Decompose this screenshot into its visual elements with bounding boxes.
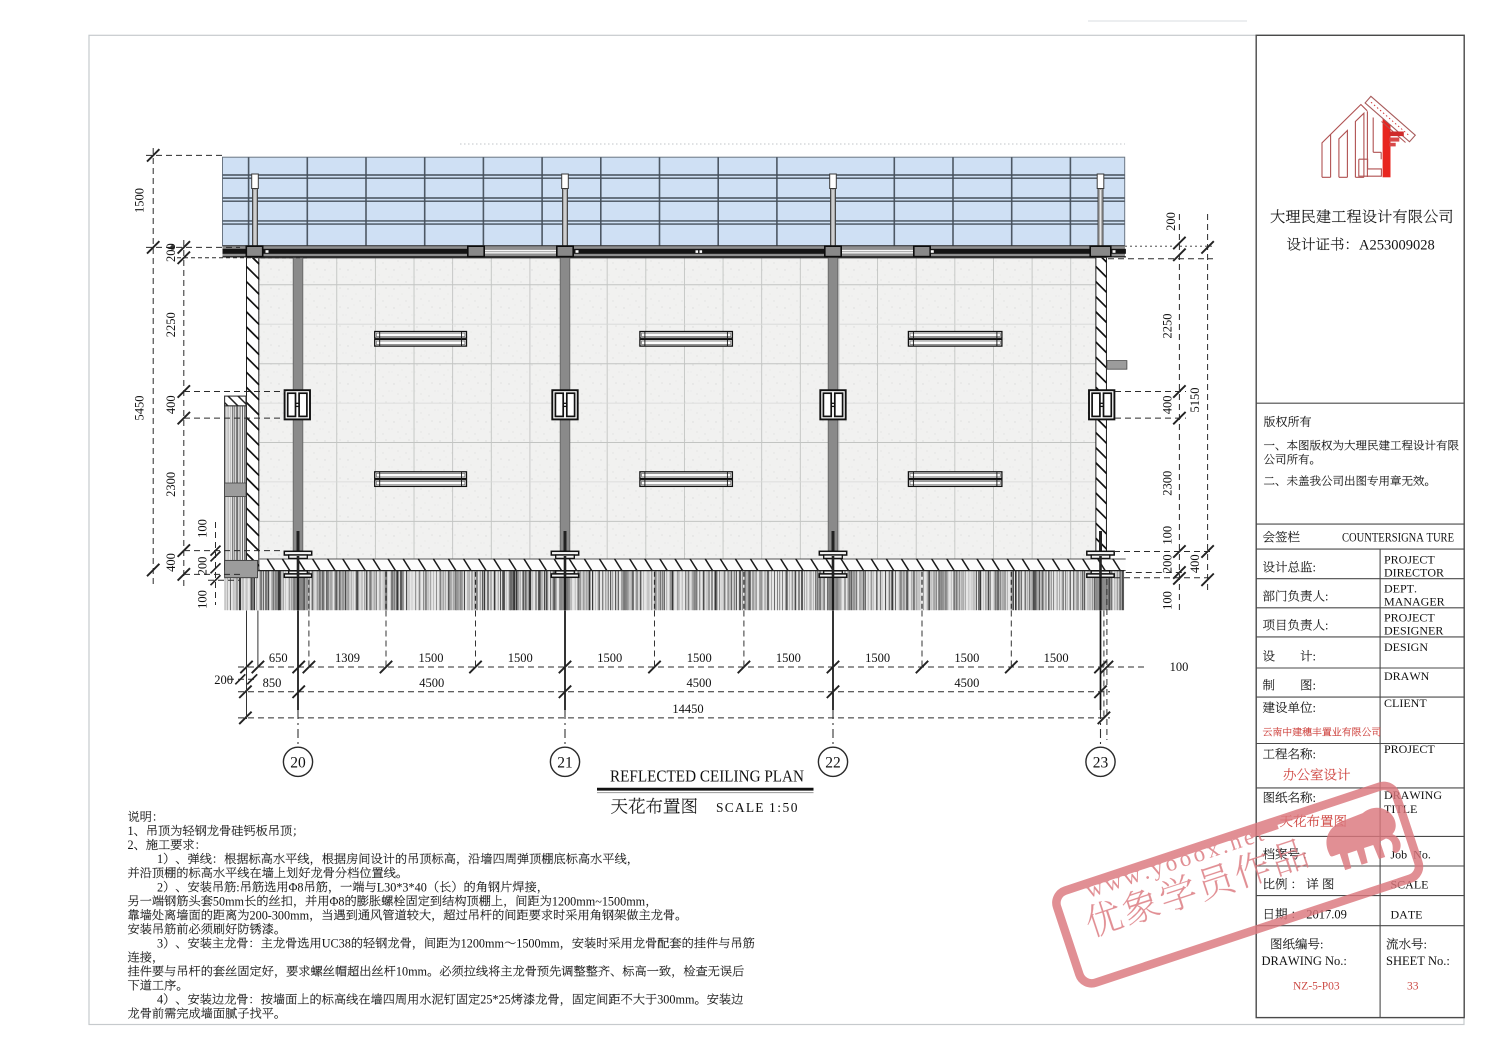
svg-text::: :: [1313, 701, 1316, 715]
svg-text:50mm: 50mm: [213, 894, 245, 908]
svg-text::: :: [1320, 938, 1323, 952]
svg-text:NZ-5-P03: NZ-5-P03: [1293, 981, 1340, 993]
svg-text:4500: 4500: [419, 676, 444, 690]
svg-text:4: 4: [157, 993, 163, 1007]
svg-text:3: 3: [157, 936, 163, 950]
svg-text:200: 200: [196, 557, 210, 576]
svg-text:1200mm~1500mm: 1200mm~1500mm: [552, 894, 646, 908]
svg-text:100: 100: [196, 519, 210, 538]
svg-text:MANAGER: MANAGER: [1384, 595, 1445, 609]
svg-text:REFLECTED CEILING PLAN: REFLECTED CEILING PLAN: [610, 767, 804, 786]
svg-text:100: 100: [1170, 660, 1189, 674]
svg-text::: :: [1313, 748, 1316, 762]
svg-text:1500mm: 1500mm: [516, 936, 560, 950]
svg-text:A253009028: A253009028: [1359, 238, 1435, 254]
svg-text:100: 100: [1160, 591, 1174, 610]
svg-text:1: 1: [128, 824, 134, 838]
svg-text:Φ8: Φ8: [329, 894, 344, 908]
svg-text:200: 200: [214, 673, 233, 687]
svg-text:100: 100: [196, 590, 210, 609]
svg-text:DEPT.: DEPT.: [1384, 582, 1417, 596]
svg-text:DIRECTOR: DIRECTOR: [1384, 566, 1444, 580]
svg-text:1500: 1500: [865, 651, 890, 665]
svg-text:2250: 2250: [1160, 314, 1174, 339]
svg-text:DRAWING No.:: DRAWING No.:: [1262, 954, 1347, 968]
svg-text:2: 2: [157, 880, 163, 894]
svg-text:400: 400: [1160, 396, 1174, 415]
svg-text:1500: 1500: [508, 651, 533, 665]
svg-text:1500: 1500: [776, 651, 801, 665]
svg-text:650: 650: [269, 651, 288, 665]
svg-text:2: 2: [128, 838, 134, 852]
svg-text:2300: 2300: [1160, 471, 1174, 496]
svg-text:2300: 2300: [164, 472, 178, 497]
svg-text:33: 33: [1407, 981, 1419, 993]
svg-text:20: 20: [290, 754, 306, 771]
svg-text:10mm: 10mm: [396, 965, 428, 979]
svg-text:Φ8: Φ8: [288, 880, 303, 894]
svg-text:23: 23: [1093, 754, 1109, 771]
svg-text:22: 22: [825, 754, 841, 771]
svg-text:CLIENT: CLIENT: [1384, 696, 1427, 710]
svg-text:400: 400: [164, 553, 178, 572]
svg-text:1500: 1500: [419, 651, 444, 665]
svg-text:14450: 14450: [672, 702, 703, 716]
svg-text:200: 200: [164, 243, 178, 262]
svg-text:400: 400: [164, 395, 178, 414]
svg-text:4500: 4500: [687, 676, 712, 690]
svg-text:PROJECT: PROJECT: [1384, 742, 1435, 756]
svg-text:850: 850: [263, 676, 282, 690]
svg-text:5450: 5450: [133, 396, 147, 421]
svg-text:100: 100: [1160, 526, 1174, 545]
svg-text:200: 200: [1160, 554, 1174, 573]
svg-text:1500: 1500: [133, 188, 147, 213]
svg-text:1: 1: [157, 852, 163, 866]
svg-text:200-300mm: 200-300mm: [250, 908, 310, 922]
svg-text:DESIGNER: DESIGNER: [1384, 624, 1443, 638]
svg-text:1500: 1500: [1044, 651, 1069, 665]
svg-text:COUNTERSIGNA TURE: COUNTERSIGNA TURE: [1342, 531, 1454, 545]
svg-text:DESIGN: DESIGN: [1384, 640, 1428, 654]
svg-text:5150: 5150: [1188, 388, 1202, 413]
svg-text:400: 400: [1188, 554, 1202, 573]
svg-text:PROJECT: PROJECT: [1384, 611, 1435, 625]
svg-text:1500: 1500: [954, 651, 979, 665]
svg-text::: :: [1313, 679, 1316, 693]
svg-text::: :: [1325, 590, 1328, 604]
svg-text:200: 200: [1164, 212, 1178, 231]
svg-text::: :: [1424, 938, 1427, 952]
svg-text:SCALE: SCALE: [716, 800, 765, 815]
svg-text:4500: 4500: [954, 676, 979, 690]
svg-text:1309: 1309: [335, 651, 360, 665]
svg-text::: :: [1313, 650, 1316, 664]
svg-text:2250: 2250: [164, 312, 178, 337]
svg-text::: :: [236, 880, 239, 894]
svg-text:21: 21: [557, 754, 573, 771]
svg-text:25*25: 25*25: [480, 993, 510, 1007]
svg-text::: :: [1313, 791, 1316, 805]
svg-text:1500: 1500: [597, 651, 622, 665]
svg-text:DATE: DATE: [1391, 908, 1423, 922]
svg-text:DRAWN: DRAWN: [1384, 669, 1430, 683]
svg-text::: :: [1325, 619, 1328, 633]
svg-text:1500: 1500: [687, 651, 712, 665]
svg-text:UC38: UC38: [322, 936, 351, 950]
svg-text:1200mm: 1200mm: [461, 936, 505, 950]
svg-text:1:50: 1:50: [769, 800, 799, 815]
svg-text:L30*3*40: L30*3*40: [377, 880, 427, 894]
svg-text:SHEET No.:: SHEET No.:: [1386, 954, 1450, 968]
svg-text:PROJECT: PROJECT: [1384, 553, 1435, 567]
svg-text::: :: [1313, 561, 1316, 575]
svg-text:300mm: 300mm: [657, 993, 695, 1007]
